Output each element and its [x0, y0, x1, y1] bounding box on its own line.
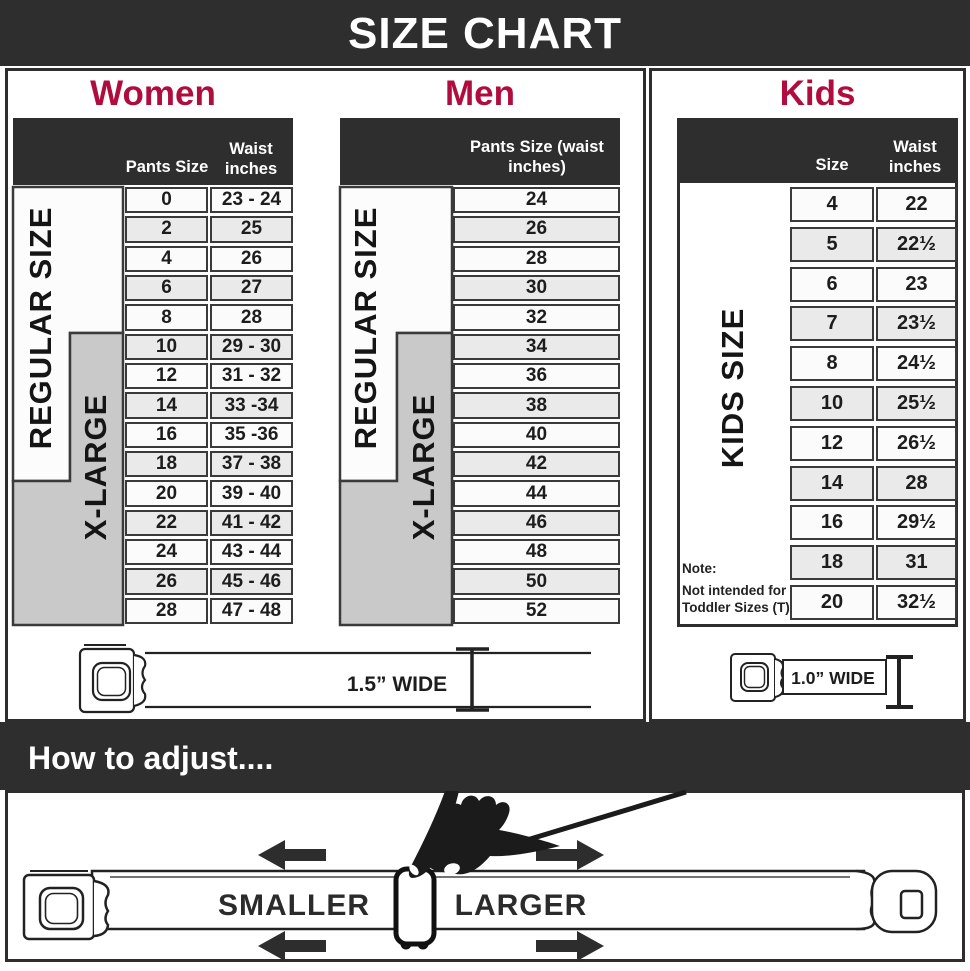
men-size-table: 24 26 28 30 32 34 36 38 40 42 44 46 48 5…: [453, 187, 620, 624]
table-cell: 43 - 44: [210, 539, 293, 565]
table-cell: 26: [453, 216, 620, 242]
table-cell: 22: [125, 510, 208, 536]
table-cell: 52: [453, 598, 620, 624]
note-line: Toddler Sizes (T): [682, 599, 792, 616]
table-cell: 12: [125, 363, 208, 389]
men-xlarge-label: X-LARGE: [404, 317, 444, 617]
table-cell: 2: [125, 216, 208, 242]
page-title: SIZE CHART: [0, 0, 970, 66]
table-cell: 22: [876, 187, 957, 222]
table-cell: 4: [790, 187, 874, 222]
table-cell: 20: [125, 480, 208, 506]
table-cell: 24: [453, 187, 620, 213]
table-cell: 26: [210, 246, 293, 272]
men-col-header: Pants Size (waist inches): [462, 137, 612, 177]
table-cell: 45 - 46: [210, 568, 293, 594]
table-cell: 29 - 30: [210, 334, 293, 360]
kids-col1-header: Size: [790, 155, 874, 175]
table-cell: 0: [125, 187, 208, 213]
note-title: Note:: [682, 560, 792, 577]
women-col1-header: Pants Size: [125, 157, 209, 177]
table-cell: 28: [210, 304, 293, 330]
table-cell: 25½: [876, 386, 957, 421]
table-cell: 8: [125, 304, 208, 330]
table-cell: 33 -34: [210, 392, 293, 418]
table-cell: 46: [453, 510, 620, 536]
table-cell: 47 - 48: [210, 598, 293, 624]
table-cell: 38: [453, 392, 620, 418]
table-cell: 44: [453, 480, 620, 506]
table-cell: 20: [790, 585, 874, 620]
table-cell: 29½: [876, 505, 957, 540]
table-cell: 27: [210, 275, 293, 301]
men-regular-label: REGULAR SIZE: [346, 178, 386, 478]
table-cell: 16: [125, 422, 208, 448]
kids-heading: Kids: [677, 70, 958, 116]
table-cell: 5: [790, 227, 874, 262]
table-cell: 18: [790, 545, 874, 580]
table-cell: 10: [790, 386, 874, 421]
table-cell: 30: [453, 275, 620, 301]
women-col2-header: Waist inches: [209, 139, 293, 179]
table-cell: 28: [453, 246, 620, 272]
women-size-table: 023 - 24 225 426 627 828 1029 - 30 1231 …: [125, 187, 293, 624]
table-cell: 7: [790, 306, 874, 341]
table-cell: 6: [125, 275, 208, 301]
adjust-illustration-panel: [5, 790, 965, 962]
table-cell: 37 - 38: [210, 451, 293, 477]
table-cell: 31 - 32: [210, 363, 293, 389]
table-cell: 34: [453, 334, 620, 360]
kids-table-header: Size Waist inches: [677, 118, 958, 183]
table-cell: 16: [790, 505, 874, 540]
table-cell: 28: [125, 598, 208, 624]
table-cell: 35 -36: [210, 422, 293, 448]
kids-size-label: KIDS SIZE: [713, 238, 753, 538]
table-cell: 32½: [876, 585, 957, 620]
table-cell: 31: [876, 545, 957, 580]
kids-size-table: 422 522½ 623 723½ 824½ 1025½ 1226½ 1428 …: [790, 187, 957, 620]
table-cell: 14: [790, 466, 874, 501]
table-cell: 6: [790, 267, 874, 302]
women-table-header: Pants Size Waist inches: [13, 118, 293, 185]
table-cell: 26: [125, 568, 208, 594]
table-cell: 39 - 40: [210, 480, 293, 506]
table-cell: 40: [453, 422, 620, 448]
women-heading: Women: [13, 70, 293, 116]
table-cell: 8: [790, 346, 874, 381]
women-xlarge-label: X-LARGE: [76, 317, 116, 617]
table-cell: 4: [125, 246, 208, 272]
table-cell: 28: [876, 466, 957, 501]
table-cell: 42: [453, 451, 620, 477]
table-cell: 41 - 42: [210, 510, 293, 536]
table-cell: 18: [125, 451, 208, 477]
table-cell: 12: [790, 426, 874, 461]
kids-col2-header: Waist inches: [875, 137, 955, 177]
table-cell: 10: [125, 334, 208, 360]
table-cell: 22½: [876, 227, 957, 262]
table-cell: 14: [125, 392, 208, 418]
table-cell: 24: [125, 539, 208, 565]
table-cell: 23: [876, 267, 957, 302]
men-heading: Men: [340, 70, 620, 116]
table-cell: 23 - 24: [210, 187, 293, 213]
table-cell: 36: [453, 363, 620, 389]
size-chart-page: SIZE CHART Women Men Kids Pants Size Wai…: [0, 0, 970, 971]
men-table-header: Pants Size (waist inches): [340, 118, 620, 185]
adjust-heading: How to adjust....: [28, 722, 273, 790]
kids-note: Note: Not intended for Toddler Sizes (T): [682, 560, 792, 616]
table-cell: 23½: [876, 306, 957, 341]
table-cell: 25: [210, 216, 293, 242]
women-regular-label: REGULAR SIZE: [21, 178, 61, 478]
note-line: Not intended for: [682, 582, 792, 599]
table-cell: 48: [453, 539, 620, 565]
table-cell: 50: [453, 568, 620, 594]
table-cell: 32: [453, 304, 620, 330]
table-cell: 24½: [876, 346, 957, 381]
table-cell: 26½: [876, 426, 957, 461]
